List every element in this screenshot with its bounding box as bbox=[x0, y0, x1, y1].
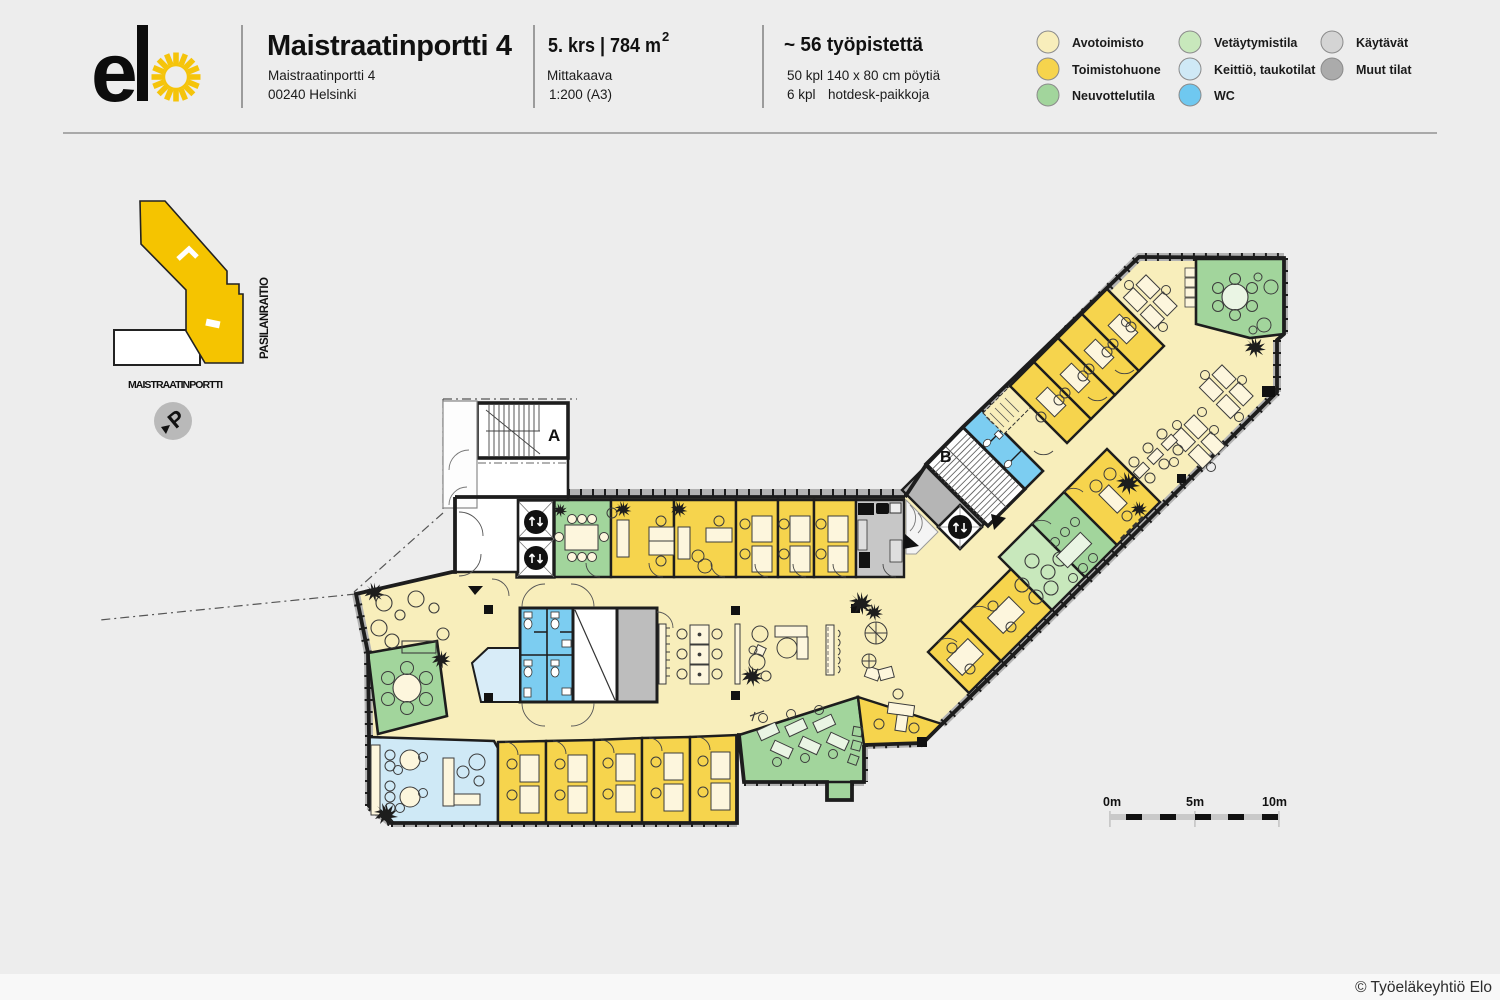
svg-text:Käytävät: Käytävät bbox=[1356, 36, 1409, 50]
svg-text:Mittakaava: Mittakaava bbox=[547, 68, 613, 83]
svg-text:Toimistohuone: Toimistohuone bbox=[1072, 63, 1161, 77]
svg-text:1:200 (A3): 1:200 (A3) bbox=[549, 87, 612, 102]
svg-text:00240 Helsinki: 00240 Helsinki bbox=[268, 87, 357, 102]
svg-text:e: e bbox=[91, 25, 138, 119]
svg-text:Maistraatinportti 4: Maistraatinportti 4 bbox=[268, 68, 376, 83]
svg-text:Maistraatinportti 4: Maistraatinportti 4 bbox=[267, 30, 512, 62]
svg-text:© Työeläkeyhtiö Elo: © Työeläkeyhtiö Elo bbox=[1355, 979, 1492, 996]
svg-text:0m: 0m bbox=[1103, 795, 1121, 809]
svg-text:A: A bbox=[548, 426, 560, 445]
svg-text:PASILANRAITIO: PASILANRAITIO bbox=[259, 277, 271, 359]
svg-text:5m: 5m bbox=[1186, 795, 1204, 809]
svg-text:Vetäytymistila: Vetäytymistila bbox=[1214, 36, 1298, 50]
svg-text:~ 56 työpistettä: ~ 56 työpistettä bbox=[784, 33, 924, 56]
svg-text:5. krs | 784 m: 5. krs | 784 m bbox=[548, 34, 661, 57]
svg-text:Neuvottelutila: Neuvottelutila bbox=[1072, 89, 1156, 103]
svg-text:Avotoimisto: Avotoimisto bbox=[1072, 36, 1144, 50]
svg-text:hotdesk-paikkoja: hotdesk-paikkoja bbox=[828, 87, 930, 102]
svg-text:Keittiö, taukotilat: Keittiö, taukotilat bbox=[1214, 63, 1316, 77]
svg-text:2: 2 bbox=[662, 29, 669, 44]
svg-text:Muut tilat: Muut tilat bbox=[1356, 63, 1412, 77]
svg-text:50 kpl 140 x 80 cm pöytiä: 50 kpl 140 x 80 cm pöytiä bbox=[787, 68, 941, 83]
svg-text:10m: 10m bbox=[1262, 795, 1287, 809]
svg-text:WC: WC bbox=[1214, 89, 1235, 103]
svg-text:MAISTRAATINPORTTI: MAISTRAATINPORTTI bbox=[128, 379, 223, 391]
svg-text:6 kpl: 6 kpl bbox=[787, 87, 816, 102]
